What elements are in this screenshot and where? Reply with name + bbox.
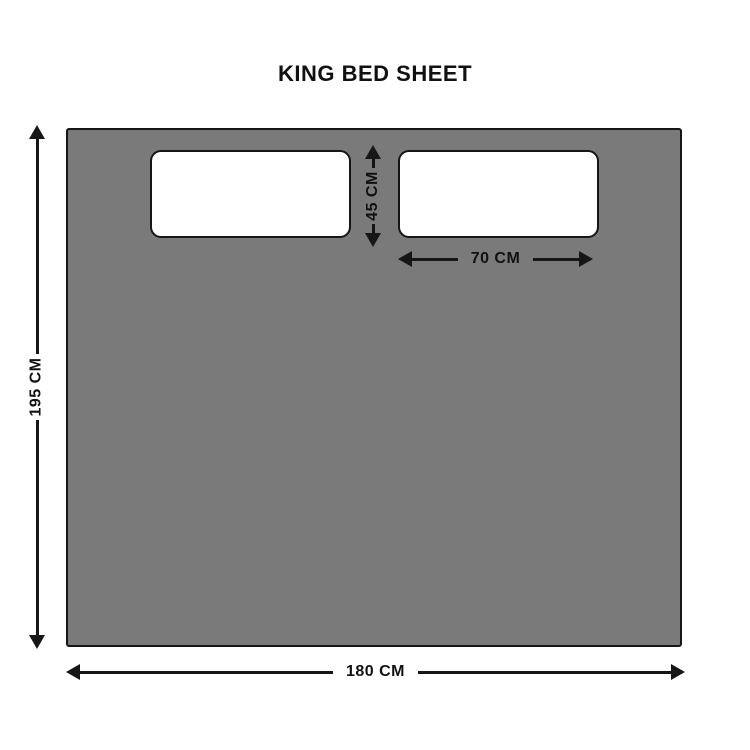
- pillow-right: [398, 150, 599, 238]
- arrow-left-icon: [398, 251, 412, 267]
- pillow-width-label: 70 CM: [458, 250, 534, 268]
- arrow-up-icon: [365, 145, 381, 159]
- arrow-down-icon: [365, 233, 381, 247]
- pillow-height-label: 45 CM: [364, 171, 382, 221]
- dimension-line: [418, 671, 671, 674]
- sheet-height-dimension: 195 CM: [24, 125, 50, 649]
- sheet-width-dimension: 180 CM: [66, 661, 685, 683]
- dimension-line: [36, 139, 39, 354]
- dimension-line: [80, 671, 333, 674]
- dimension-line: [36, 420, 39, 635]
- pillow-left: [150, 150, 351, 238]
- arrow-down-icon: [29, 635, 45, 649]
- dimension-label-wrap: 45 CM: [348, 168, 398, 224]
- diagram-canvas: KING BED SHEET 195 CM 45 CM 70 CM 18: [0, 0, 750, 750]
- arrow-left-icon: [66, 664, 80, 680]
- arrow-up-icon: [29, 125, 45, 139]
- page-title: KING BED SHEET: [0, 61, 750, 87]
- pillow-width-dimension: 70 CM: [398, 248, 593, 270]
- pillow-height-dimension: 45 CM: [360, 145, 386, 247]
- sheet-height-label: 195 CM: [28, 357, 46, 416]
- dimension-line: [533, 258, 579, 261]
- arrow-right-icon: [671, 664, 685, 680]
- dimension-line: [372, 159, 375, 168]
- dimension-label-wrap: 195 CM: [7, 354, 66, 420]
- dimension-line: [372, 224, 375, 233]
- arrow-right-icon: [579, 251, 593, 267]
- sheet-width-label: 180 CM: [333, 663, 418, 681]
- dimension-line: [412, 258, 458, 261]
